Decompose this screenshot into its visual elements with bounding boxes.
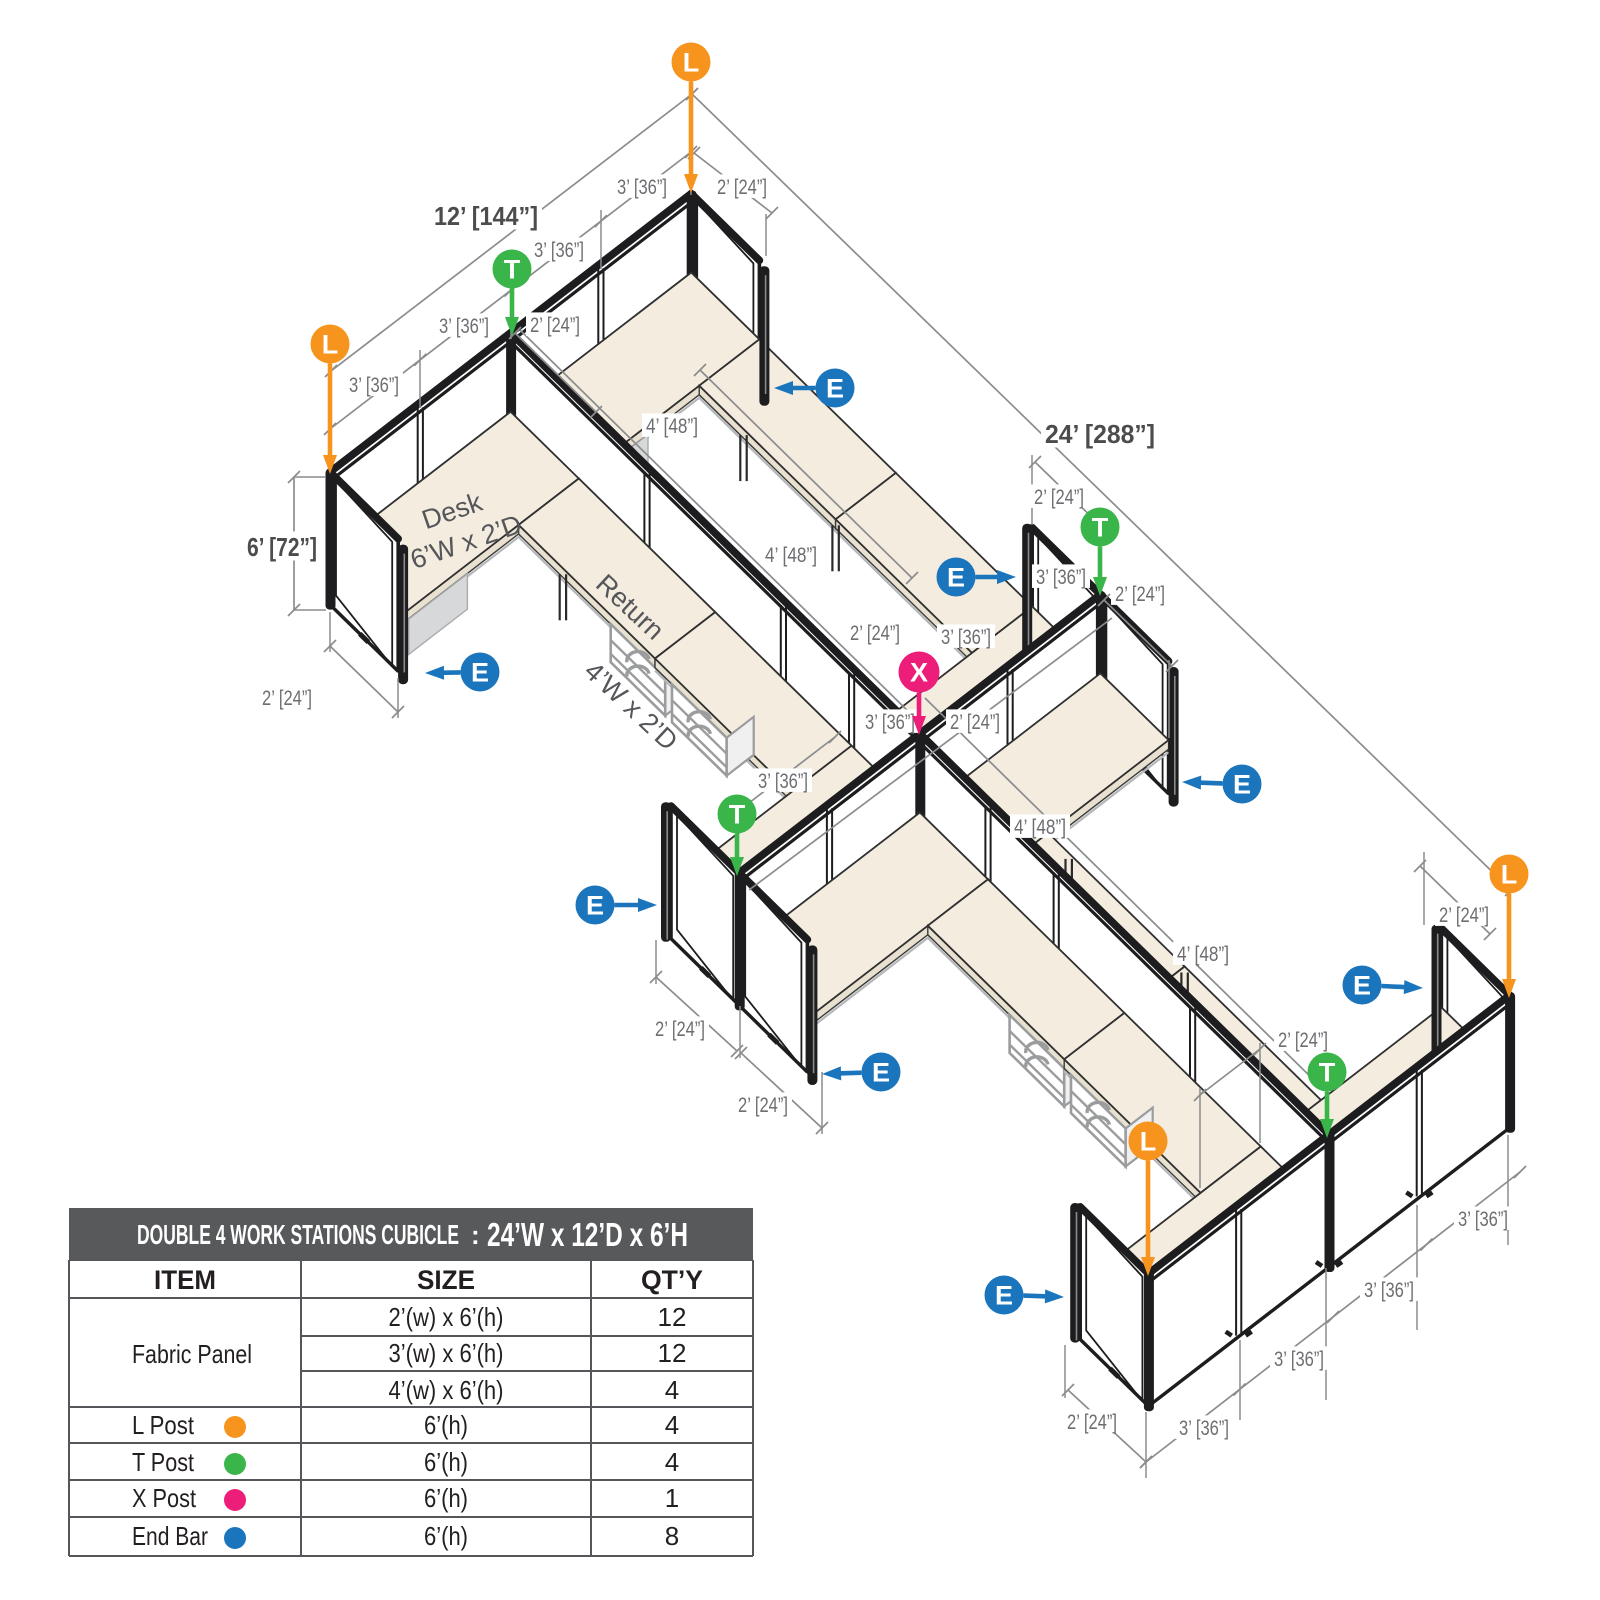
svg-text:2’ [24”]: 2’ [24”] [950, 711, 1000, 734]
svg-text:T Post: T Post [132, 1447, 195, 1477]
svg-text:2’ [24”]: 2’ [24”] [717, 176, 767, 199]
svg-text:8: 8 [665, 1521, 679, 1551]
svg-text:SIZE: SIZE [417, 1265, 475, 1295]
svg-text:3’(w) x 6’(h): 3’(w) x 6’(h) [389, 1338, 504, 1368]
svg-text:2’ [24”]: 2’ [24”] [1439, 904, 1489, 927]
svg-text:2’(w) x 6’(h): 2’(w) x 6’(h) [389, 1302, 504, 1332]
svg-text:E: E [947, 563, 965, 593]
svg-text:4: 4 [665, 1447, 679, 1477]
svg-text:1: 1 [665, 1483, 679, 1513]
svg-text:L: L [683, 48, 700, 78]
svg-text:DOUBLE 4 WORK STATIONS CUBICL: DOUBLE 4 WORK STATIONS CUBICLE [137, 1219, 459, 1250]
svg-text::: : [471, 1220, 480, 1250]
svg-text:2’ [24”]: 2’ [24”] [655, 1018, 705, 1041]
svg-text:3’ [36”]: 3’ [36”] [758, 770, 808, 793]
svg-text:4’ [48”]: 4’ [48”] [646, 415, 698, 438]
svg-text:QT’Y: QT’Y [641, 1265, 703, 1295]
svg-text:X: X [910, 658, 928, 688]
svg-text:4’ [48”]: 4’ [48”] [1014, 816, 1066, 839]
svg-text:4’ [48”]: 4’ [48”] [765, 544, 817, 567]
svg-text:2’ [24”]: 2’ [24”] [1115, 583, 1165, 606]
svg-text:End Bar: End Bar [132, 1521, 208, 1551]
svg-text:L: L [322, 330, 339, 360]
svg-text:3’ [36”]: 3’ [36”] [865, 711, 915, 734]
svg-text:3’ [36”]: 3’ [36”] [439, 315, 489, 338]
svg-text:T: T [1319, 1058, 1336, 1088]
svg-text:2’ [24”]: 2’ [24”] [530, 314, 580, 337]
svg-text:24’W x 12’D x 6’H: 24’W x 12’D x 6’H [487, 1216, 688, 1253]
svg-text:T: T [504, 255, 521, 285]
svg-text:E: E [995, 1281, 1013, 1311]
svg-text:4: 4 [665, 1410, 679, 1440]
svg-text:6’(h): 6’(h) [424, 1483, 468, 1513]
svg-text:2’ [24”]: 2’ [24”] [262, 687, 312, 710]
svg-text:2’ [24”]: 2’ [24”] [738, 1094, 788, 1117]
svg-text:4’(w) x 6’(h): 4’(w) x 6’(h) [389, 1375, 504, 1405]
svg-text:6’(h): 6’(h) [424, 1410, 468, 1440]
svg-text:6’ [72”]: 6’ [72”] [247, 532, 317, 562]
svg-text:3’ [36”]: 3’ [36”] [349, 374, 399, 397]
svg-text:4’ [48”]: 4’ [48”] [1177, 943, 1229, 966]
svg-text:2’ [24”]: 2’ [24”] [850, 622, 900, 645]
svg-text:T: T [1092, 513, 1109, 543]
svg-text:E: E [872, 1058, 890, 1088]
svg-text:24’ [288”]: 24’ [288”] [1045, 419, 1155, 449]
svg-text:ITEM: ITEM [154, 1265, 216, 1295]
svg-text:E: E [1233, 770, 1251, 800]
svg-text:T: T [729, 800, 746, 830]
svg-text:3’ [36”]: 3’ [36”] [941, 626, 991, 649]
svg-text:4: 4 [665, 1375, 679, 1405]
svg-text:2’ [24”]: 2’ [24”] [1034, 486, 1084, 509]
svg-text:Fabric Panel: Fabric Panel [132, 1339, 252, 1369]
svg-text:2’ [24”]: 2’ [24”] [1278, 1029, 1328, 1052]
svg-text:E: E [586, 891, 604, 921]
svg-text:12’ [144”]: 12’ [144”] [434, 201, 538, 231]
svg-text:E: E [826, 374, 844, 404]
svg-text:3’ [36”]: 3’ [36”] [1036, 566, 1086, 589]
svg-text:E: E [471, 658, 489, 688]
svg-text:2’ [24”]: 2’ [24”] [1067, 1411, 1117, 1434]
svg-text:3’ [36”]: 3’ [36”] [534, 239, 584, 262]
svg-text:E: E [1353, 971, 1371, 1001]
svg-text:L: L [1140, 1127, 1157, 1157]
svg-text:12: 12 [658, 1302, 687, 1332]
svg-text:3’ [36”]: 3’ [36”] [1179, 1417, 1229, 1440]
svg-text:6’(h): 6’(h) [424, 1447, 468, 1477]
svg-text:12: 12 [658, 1338, 687, 1368]
svg-text:L Post: L Post [132, 1410, 195, 1440]
svg-text:3’ [36”]: 3’ [36”] [617, 176, 667, 199]
svg-text:3’ [36”]: 3’ [36”] [1364, 1279, 1414, 1302]
svg-text:L: L [1501, 860, 1518, 890]
svg-text:X Post: X Post [132, 1483, 197, 1513]
svg-text:6’(h): 6’(h) [424, 1521, 468, 1551]
svg-text:3’ [36”]: 3’ [36”] [1274, 1348, 1324, 1371]
svg-text:3’ [36”]: 3’ [36”] [1458, 1208, 1508, 1231]
